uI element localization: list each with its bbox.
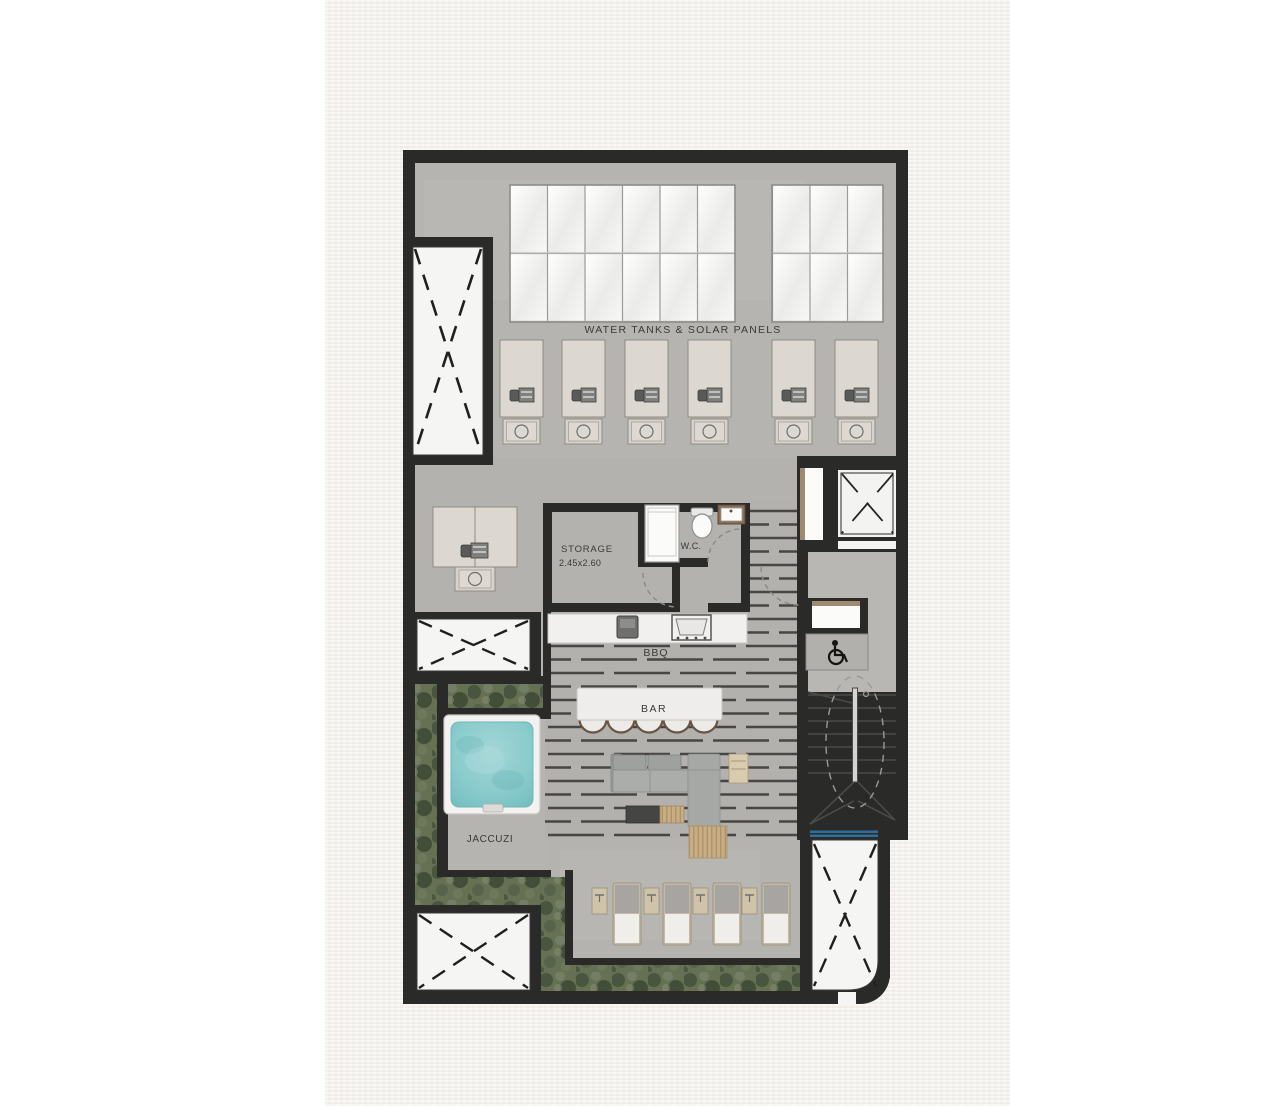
toilet [691,508,713,538]
coffee-machine [617,616,638,638]
sun-lounger [613,883,641,945]
sink [718,505,745,524]
duct-niche-west [800,468,823,540]
sun-lounger [762,883,790,945]
shower [645,505,679,562]
sun-lounger [663,883,691,945]
bbq-counter [548,614,747,643]
solar-group-left [510,185,735,322]
jacuzzi [444,715,540,814]
shaft-southwest [407,905,541,1002]
water-tank-unit [688,340,731,444]
solar-panel-array [510,185,883,322]
water-tank-unit [772,340,815,444]
label-storage: STORAGE [561,544,613,555]
shaft-west-tall [403,237,493,465]
label-bar: BAR [641,703,667,715]
water-tank-unit [562,340,605,444]
shaft-west-mid [407,612,541,678]
label-jacuzzi: JACCUZI [467,834,513,845]
lounger-table [644,888,659,914]
label-wc: W.C. [681,541,702,551]
solar-group-right [772,185,883,322]
bbq-grill [672,615,711,640]
lounge-side-table [729,754,748,783]
shaft-southeast [812,840,878,1006]
sun-lounger [713,883,741,945]
label-storage-dims: 2.45x2.60 [559,558,601,568]
floor-plan: WATER TANKS & SOLAR PANELS STORAGE 2.45x… [325,0,1010,1106]
coffee-table [626,806,684,823]
water-tank-unit [835,340,878,444]
accessible-lift-area [806,601,868,670]
lounger-table [592,888,607,914]
wood-mat [689,826,727,858]
label-bbq: BBQ [643,647,668,659]
water-tank-unit [500,340,543,444]
stair-divider [853,688,858,782]
water-tank-unit [625,340,668,444]
elevator-sill [838,541,896,549]
lounger-table [742,888,757,914]
wall-gap [838,992,856,1006]
jacuzzi-step [483,804,503,812]
lounger-table [693,888,708,914]
label-water-tanks-solar-panels: WATER TANKS & SOLAR PANELS [585,324,782,336]
